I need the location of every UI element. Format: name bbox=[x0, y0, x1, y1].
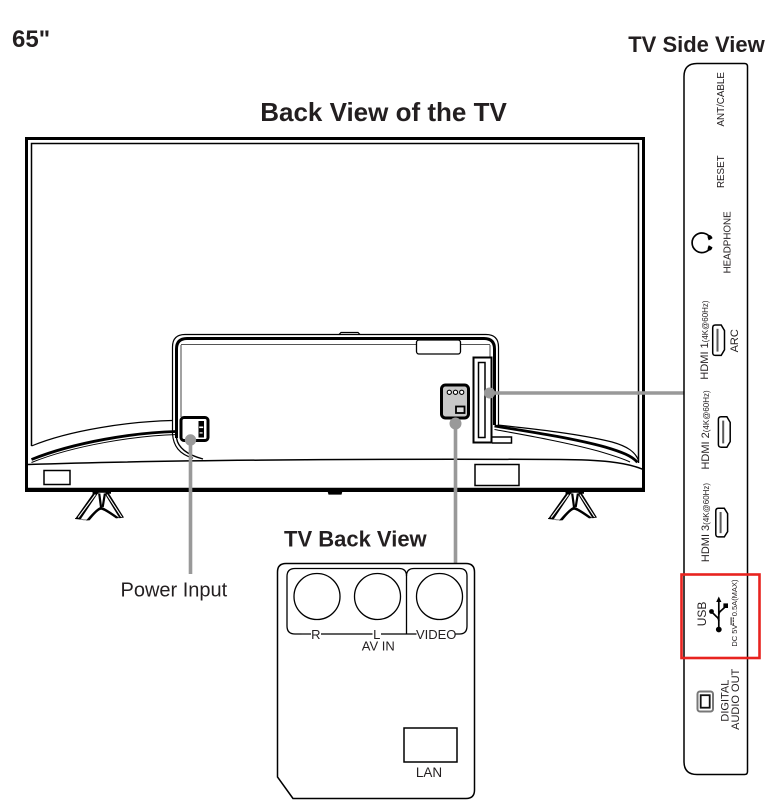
svg-text:ARC: ARC bbox=[729, 329, 741, 352]
svg-text:VIDEO: VIDEO bbox=[416, 627, 456, 642]
svg-text:R: R bbox=[311, 627, 320, 642]
svg-text:HDMI 3(4K@60Hz): HDMI 3(4K@60Hz) bbox=[700, 483, 712, 563]
svg-text:AUDIO OUT: AUDIO OUT bbox=[730, 668, 742, 729]
svg-text:LAN: LAN bbox=[416, 765, 442, 780]
svg-text:0.5A(MAX): 0.5A(MAX) bbox=[730, 579, 739, 616]
svg-text:ANT/CABLE: ANT/CABLE bbox=[716, 72, 727, 127]
svg-text:65": 65" bbox=[12, 26, 50, 53]
svg-text:DC 5V: DC 5V bbox=[730, 625, 739, 647]
svg-text:HDMI 1(4K@60Hz): HDMI 1(4K@60Hz) bbox=[699, 300, 711, 380]
svg-text:HDMI 2(4K@60Hz): HDMI 2(4K@60Hz) bbox=[700, 390, 712, 470]
svg-text:RESET: RESET bbox=[716, 155, 727, 188]
svg-text:Back View of the TV: Back View of the TV bbox=[260, 97, 507, 127]
svg-text:AV IN: AV IN bbox=[362, 639, 395, 654]
svg-text:HEADPHONE: HEADPHONE bbox=[723, 211, 734, 274]
svg-text:TV Side View: TV Side View bbox=[628, 32, 765, 57]
svg-text:Power Input: Power Input bbox=[121, 580, 228, 602]
svg-text:USB: USB bbox=[695, 602, 709, 627]
svg-text:TV Back View: TV Back View bbox=[284, 527, 428, 552]
